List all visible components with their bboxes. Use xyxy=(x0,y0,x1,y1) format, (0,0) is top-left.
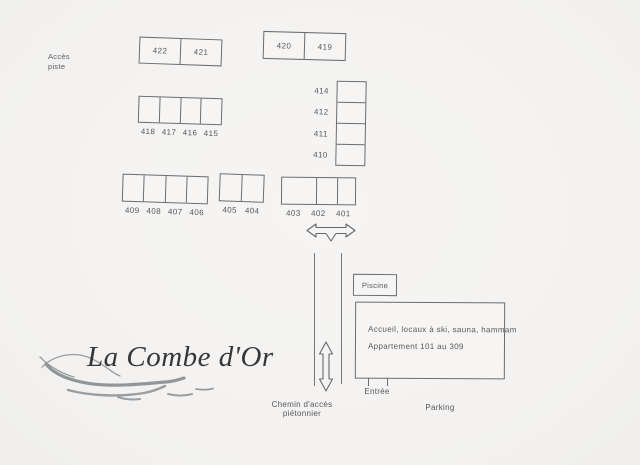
block-409-406: 409 408 407 406 xyxy=(121,174,208,218)
unit-label-403: 403 xyxy=(281,209,306,218)
main-building-box: Accueil, locaux à ski, sauna, hammam App… xyxy=(355,302,505,380)
horizontal-double-arrow-icon xyxy=(306,223,356,243)
unit-cell xyxy=(337,178,359,204)
block-403-401: 403 402 401 xyxy=(281,177,356,219)
unit-422: 422 xyxy=(140,38,181,64)
unit-cell xyxy=(337,102,365,123)
unit-cell xyxy=(179,98,200,124)
unit-cell xyxy=(337,123,365,144)
block-418-415: 418 417 416 415 xyxy=(137,96,222,138)
block-420-419: 420 419 xyxy=(263,31,347,61)
acces-piste-line1: Accès xyxy=(48,52,70,62)
unit-cell xyxy=(241,175,264,202)
parking-label: Parking xyxy=(418,403,462,412)
footpath-line-left xyxy=(314,253,315,386)
unit-cell xyxy=(143,175,165,202)
acces-piste-label: Accès piste xyxy=(48,52,70,71)
unit-cell xyxy=(220,174,242,201)
vertical-double-arrow-icon xyxy=(318,341,334,392)
unit-419: 419 xyxy=(304,33,346,60)
unit-cell xyxy=(200,99,221,125)
logo-text: La Combe d'Or xyxy=(87,341,274,374)
unit-label-406: 406 xyxy=(186,208,208,218)
unit-label-414: 414 xyxy=(311,80,331,102)
unit-cell xyxy=(139,97,159,123)
unit-label-410: 410 xyxy=(310,144,330,166)
unit-label-401: 401 xyxy=(331,209,356,218)
building-services-label: Accueil, locaux à ski, sauna, hammam xyxy=(368,325,517,335)
unit-cell xyxy=(186,177,208,204)
unit-label-407: 407 xyxy=(164,207,186,217)
unit-421: 421 xyxy=(180,39,222,65)
unit-label-405: 405 xyxy=(218,205,241,215)
unit-cell xyxy=(164,176,186,203)
unit-label-409: 409 xyxy=(121,206,143,216)
entrance-tick-left xyxy=(368,378,369,386)
building-apartments-label: Appartement 101 au 309 xyxy=(368,342,464,352)
block-414-410: 414 412 411 410 xyxy=(335,81,366,167)
entree-label: Entrée xyxy=(358,387,396,396)
unit-cell xyxy=(123,175,144,202)
unit-cell xyxy=(337,82,365,102)
unit-label-402: 402 xyxy=(306,209,331,218)
entrance-tick-right xyxy=(387,378,388,386)
unit-cell xyxy=(316,178,337,204)
piscine-label: Piscine xyxy=(362,280,388,289)
unit-label-415: 415 xyxy=(200,129,221,139)
unit-cell xyxy=(336,144,364,165)
unit-label-417: 417 xyxy=(158,127,179,137)
unit-label-418: 418 xyxy=(137,127,158,137)
unit-label-404: 404 xyxy=(241,206,264,216)
unit-label-416: 416 xyxy=(179,128,200,138)
unit-label-411: 411 xyxy=(311,123,331,145)
unit-cell xyxy=(159,97,180,123)
piscine-box: Piscine xyxy=(353,274,397,296)
block-405-404: 405 404 xyxy=(218,173,264,216)
unit-label-412: 412 xyxy=(311,102,331,124)
unit-420: 420 xyxy=(264,32,305,59)
chemin-acces-label: Chemin d'accès piétonnier xyxy=(252,400,352,418)
unit-label-408: 408 xyxy=(143,206,165,216)
block-422-421: 422 421 xyxy=(139,37,223,67)
footpath-line-right xyxy=(341,253,342,384)
site-plan-canvas: Accès piste 422 421 420 419 418 417 416 … xyxy=(0,0,640,465)
acces-piste-line2: piste xyxy=(48,62,70,72)
unit-cell xyxy=(282,178,316,204)
